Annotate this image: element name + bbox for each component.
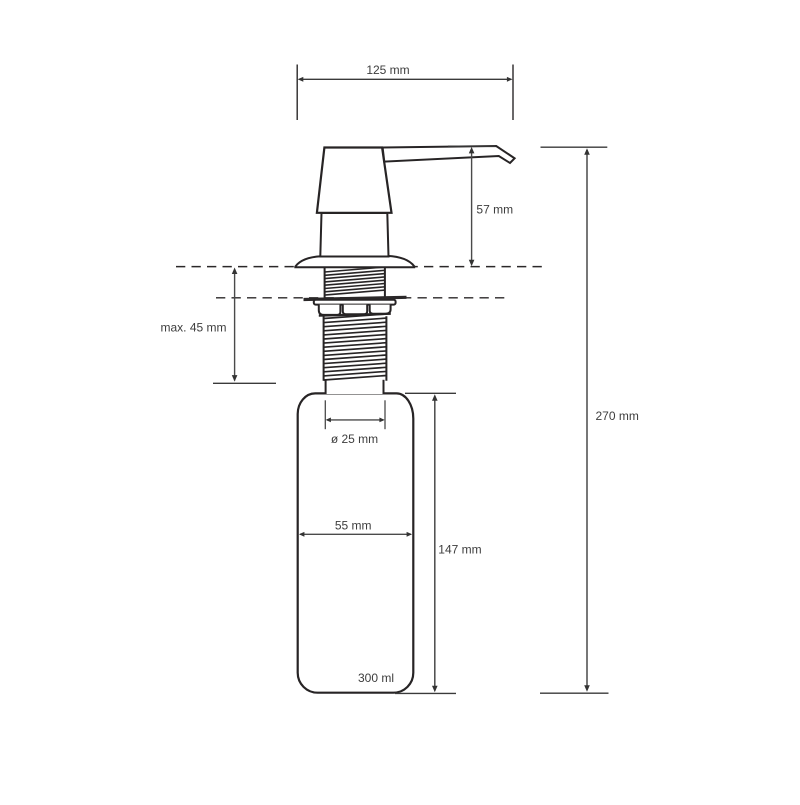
svg-text:300 ml: 300 ml bbox=[358, 671, 394, 685]
svg-text:57 mm: 57 mm bbox=[476, 203, 513, 217]
svg-text:ø 25 mm: ø 25 mm bbox=[331, 432, 378, 446]
svg-text:max. 45 mm: max. 45 mm bbox=[160, 321, 226, 335]
svg-text:55 mm: 55 mm bbox=[335, 519, 372, 533]
svg-text:270 mm: 270 mm bbox=[596, 409, 639, 423]
svg-text:147 mm: 147 mm bbox=[438, 543, 481, 557]
svg-text:125 mm: 125 mm bbox=[366, 63, 409, 77]
